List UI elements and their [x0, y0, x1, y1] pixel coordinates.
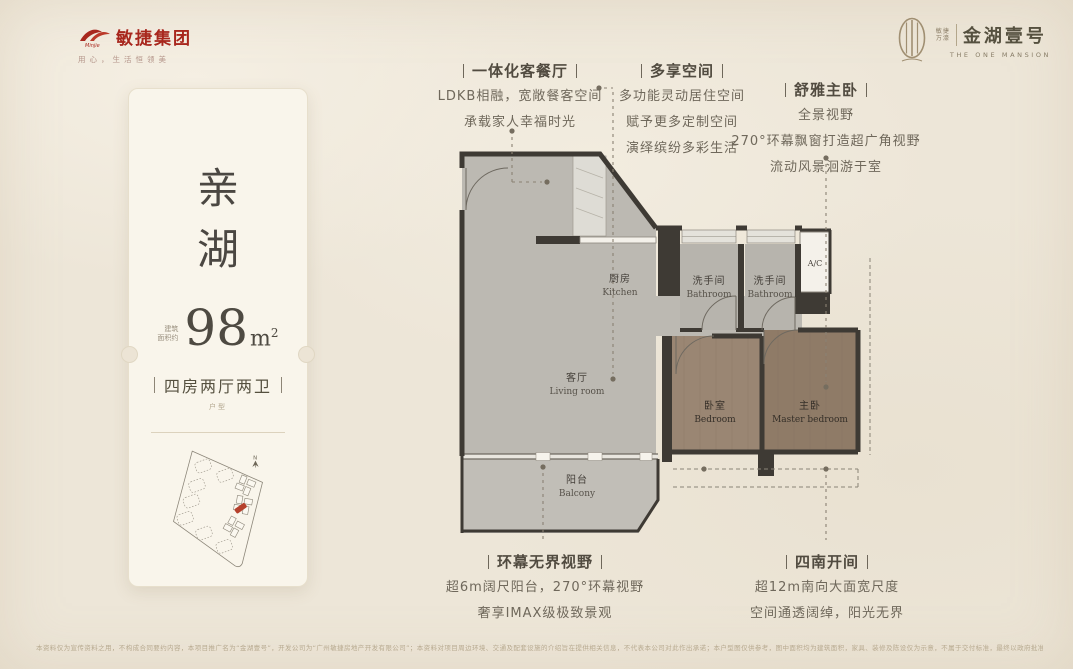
corridor-floor: [656, 296, 802, 336]
card-divider: [151, 432, 285, 433]
annotation-line: 超12m南向大面宽尺度: [717, 579, 937, 598]
brand-name: 敏捷集团: [116, 24, 192, 49]
bathroom2-floor: [745, 244, 795, 330]
annotation-line: 全景视野: [726, 107, 926, 126]
room-label-master-zh: 主卧: [799, 399, 821, 412]
area-unit: m2: [250, 326, 279, 351]
ticket-notch-right: [298, 346, 315, 363]
layout-note: 户型: [209, 402, 227, 412]
divider: [956, 24, 957, 46]
room-label-living-zh: 客厅: [566, 371, 588, 384]
disclaimer-text: 本资料仅为宣传资料之用，不构成合同要约内容，本项目推广名为“金湖壹号”，开发公司…: [36, 642, 1043, 652]
brand-left: Minjie 敏捷集团 用心，生活恒领美: [78, 24, 192, 65]
room-label-bath1-en: Bathroom: [686, 290, 732, 300]
annotation-line: 270°环幕飘窗打造超广角视野: [726, 133, 926, 152]
site-plan: N: [145, 441, 291, 586]
room-label-bath2-en: Bathroom: [747, 290, 793, 300]
annotation-title: 一体化客餐厅: [472, 60, 568, 81]
unit-info-card: 亲湖 建筑 面积约 98 m2 四房两厅两卫 户型: [128, 88, 308, 587]
annotation-title: 四南开间: [795, 551, 859, 572]
room-label-master-en: Master bedroom: [772, 415, 848, 425]
mansion-name-en: THE ONE MANSION: [950, 51, 1051, 59]
bathroom1-floor: [680, 244, 738, 330]
logo-script: Minjie: [85, 43, 100, 49]
room-label-bedroom-zh: 卧室: [704, 399, 726, 412]
area-prefix: 建筑 面积约: [157, 325, 178, 343]
annotation-title: 环幕无界视野: [497, 551, 593, 572]
annotation-line: 空间通透阔绰，阳光无界: [717, 605, 937, 624]
annotation-line: 奢享IMAX级极致景观: [435, 605, 655, 624]
annotation-south-facing-bays: 四南开间 超12m南向大面宽尺度 空间通透阔绰，阳光无界: [717, 551, 937, 624]
room-label-balcony-zh: 阳台: [566, 473, 588, 486]
layout-label: 四房两厅两卫: [164, 373, 272, 397]
site-building-footprints: [176, 458, 234, 554]
swoosh-logo-icon: Minjie: [78, 25, 112, 49]
annotation-master-bedroom: 舒雅主卧 全景视野 270°环幕飘窗打造超广角视野 流动风景洄游于室: [726, 79, 926, 178]
mansion-developer-mark: 敏捷 万濠: [936, 28, 950, 42]
room-label-kitchen-en: Kitchen: [602, 288, 637, 298]
floorplan-poster: Minjie 敏捷集团 用心，生活恒领美 敏捷 万濠 金湖壹号 THE ONE …: [0, 0, 1073, 669]
unit-layout: 四房两厅两卫: [154, 373, 282, 397]
annotation-line: 超6m阔尺阳台，270°环幕视野: [435, 579, 655, 598]
north-indicator: N: [253, 456, 258, 468]
svg-text:N: N: [253, 456, 257, 462]
mansion-emblem-icon: [897, 16, 927, 64]
annotation-title: 多享空间: [650, 60, 714, 81]
annotation-line: 流动风景洄游于室: [726, 159, 926, 178]
decorative-bar: [281, 377, 282, 393]
room-label-living-en: Living room: [550, 387, 605, 397]
brand-tagline: 用心，生活恒领美: [78, 54, 192, 65]
brand-right: 敏捷 万濠 金湖壹号 THE ONE MANSION: [897, 16, 1051, 64]
ticket-notch-left: [121, 346, 138, 363]
living-kitchen-floor: [462, 154, 656, 455]
room-label-bath2-zh: 洗手间: [754, 274, 787, 287]
unit-name: 亲湖: [129, 155, 307, 277]
room-label-kitchen-zh: 厨房: [609, 272, 631, 285]
bedroom-floor: [672, 336, 760, 452]
room-label-bath1-zh: 洗手间: [693, 274, 726, 287]
area-value: 98: [184, 303, 248, 353]
room-label-balcony-en: Balcony: [559, 489, 596, 499]
master-bedroom-floor: [764, 330, 858, 452]
ac-closet: [800, 232, 830, 292]
mansion-name: 金湖壹号: [963, 22, 1047, 48]
unit-area: 建筑 面积约 98 m2: [157, 303, 278, 357]
balcony-floor: [462, 458, 658, 533]
annotation-panoramic-balcony: 环幕无界视野 超6m阔尺阳台，270°环幕视野 奢享IMAX级极致景观: [435, 551, 655, 624]
annotation-title: 舒雅主卧: [794, 79, 858, 100]
ac-label: A/C: [807, 259, 823, 268]
room-label-bedroom-en: Bedroom: [694, 415, 736, 425]
decorative-bar: [154, 377, 155, 393]
